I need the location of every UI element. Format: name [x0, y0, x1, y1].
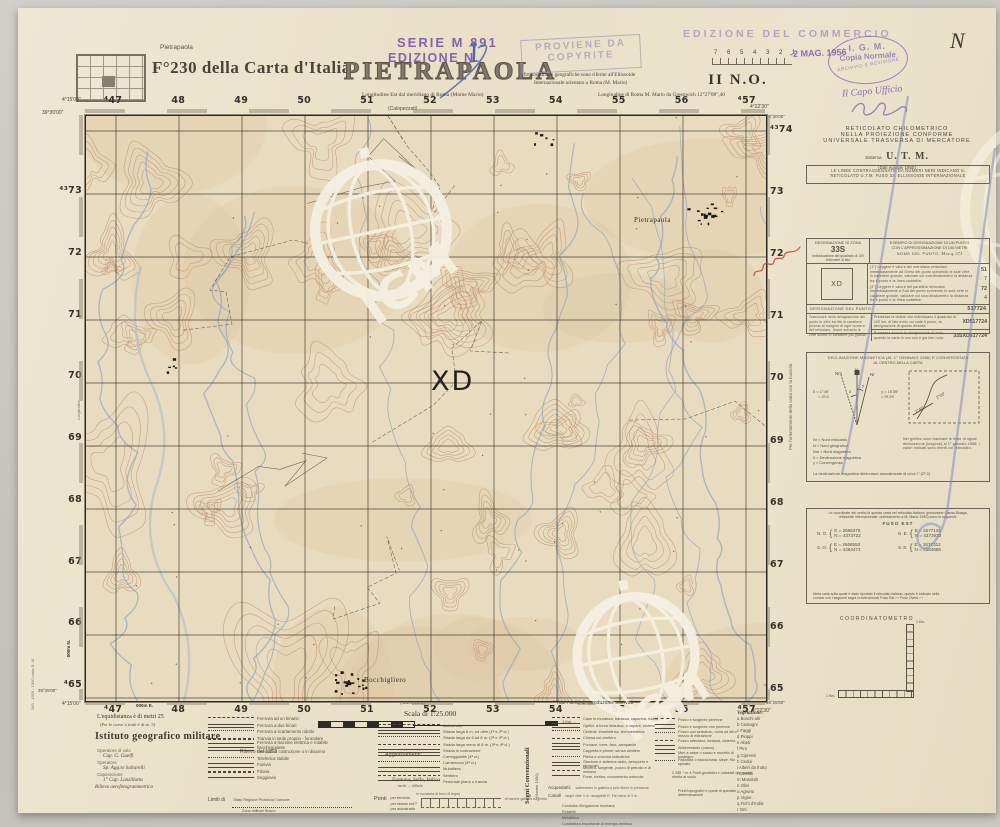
credit-name-2: Sp. Agg.to Saltarelli	[103, 765, 153, 771]
corner-northing: N = 4364686	[915, 547, 941, 552]
legend-row: Funivia	[208, 762, 338, 769]
legend-label: Carreggiabile (4ª cl.)	[443, 755, 479, 759]
grid-label: 69	[770, 435, 800, 446]
quadrant-label: II N.O.	[698, 72, 778, 89]
legend-label: Pedonale piano o traccia	[443, 780, 487, 784]
legend-label: Mulattiera	[443, 767, 461, 771]
isogone-chart: 2°00' 1°45'	[907, 369, 981, 425]
grid-labels-top: ⁴47484950515253545556⁴57	[104, 95, 756, 106]
black-grid-note: LE LINEE CONTRASSEGNATE DA NUMERI NERI I…	[806, 165, 990, 184]
legend-symbol	[552, 770, 580, 772]
black-note-2: RETICOLATO U.T.M. FUSO 33. ELLISSOIDE IN…	[807, 173, 989, 178]
corner-tl-lat: 39°30'00"	[42, 110, 63, 116]
legend-row: Pozzo artesiano, fontana, cisterna	[655, 737, 747, 744]
legend-symbol	[552, 717, 580, 721]
grid-label: 48	[171, 95, 185, 106]
corner-name: S. E.	[898, 545, 908, 550]
limits-divider	[232, 807, 352, 808]
legend-symbol	[655, 740, 675, 742]
brace: {	[829, 528, 832, 538]
legend-row: Teleferica stabile	[208, 756, 338, 763]
nome-punto-value: M.te q. 371	[941, 251, 962, 256]
grid-label: 52	[423, 95, 437, 106]
legend-symbol	[208, 777, 254, 781]
svg-text:N: N	[855, 368, 858, 373]
legend-symbol	[378, 761, 440, 765]
legend-railways: Ferrovia ad un binario Ferrovia a due bi…	[208, 716, 338, 782]
town-label-bocchigliero: Bocchigliero	[364, 676, 406, 684]
legend-symbol	[208, 738, 254, 740]
legend-symbol	[208, 717, 254, 721]
grid-label: 55	[612, 95, 626, 106]
legend-symbol	[655, 745, 675, 749]
corner-tl-lon: 4°15'00"	[62, 97, 81, 103]
credits-block: Operatore di volo Cap. G. Guelfi Operato…	[97, 748, 153, 790]
legend-symbol	[655, 724, 675, 728]
coords-note-2: cornice con i seguenti segni convenziona…	[813, 596, 983, 600]
legend-row: Pozzo con serbatoio, noria od altro mezz…	[655, 730, 747, 737]
legend-label: Seggiovia	[257, 776, 276, 781]
legend-label: Pozzo artesiano, fontana, cisterna	[678, 739, 735, 743]
legend-label: Cappella e pilone; senza cimitero	[583, 749, 640, 753]
corner-bl-lon: 4°15'00"	[62, 701, 81, 707]
corner-name: S. O.	[817, 545, 827, 550]
zona-value: 33S	[808, 245, 868, 254]
legend-row: Ferrovia a trazione elettrica e rotabile…	[208, 742, 338, 749]
print-code-vertical: 346 - 1956 - 1000 carta R. M.	[30, 590, 35, 710]
coordinate-note-2: Internazionale orientato a Roma (M. Mari…	[534, 80, 627, 86]
grid-label: 50	[297, 95, 311, 106]
coordinatometro-horizontal-ruler[interactable]	[838, 690, 914, 698]
legend-symbol	[208, 757, 254, 761]
legend-symbol	[552, 743, 580, 747]
proviene-stamp: PROVIENE DA COPYRITE	[520, 34, 642, 74]
declination-title-2: AL CENTRO DELLA CARTA	[807, 360, 989, 365]
corner-coordinate: S. E. { E = 2677312 N = 4364686	[898, 542, 979, 552]
legend-label: Ferrovia a due binari	[257, 724, 296, 729]
example-square-label: XD	[831, 281, 843, 288]
equidistance-note-2: (Per le curve a tratti è di m. 5)	[100, 722, 155, 727]
igm-institute-title: Istituto geografico militare	[95, 731, 220, 742]
legend-symbol	[378, 724, 440, 728]
utm-square-label: XD	[431, 366, 474, 397]
grid-label: ⁴47	[104, 95, 122, 106]
equidistance-note: L'equidistanza è di metri 25	[97, 714, 164, 720]
legend-wells: Pozzo e sorgente perenne Pozzo e sorgent…	[655, 716, 747, 765]
nome-punto-label: NOME DEL PUNTO:	[897, 251, 940, 256]
legend-symbol	[378, 736, 440, 740]
legend-symbol	[552, 749, 580, 753]
legend-label: Strada larga 8 m. ed oltre (1ª e 2ª cl.)	[443, 730, 509, 734]
legend-symbol	[378, 755, 440, 759]
svg-text:δ: δ	[849, 389, 852, 394]
svg-text:γ: γ	[862, 383, 864, 388]
limits-items-1: Stato Regione Provincia Comune	[233, 798, 289, 802]
brace: {	[910, 542, 913, 552]
margin-ruler	[712, 58, 792, 65]
legend-label: Ferrovia ad un binario	[257, 717, 299, 722]
legend-label: Fornace, torre, faro, campanile	[583, 743, 636, 747]
legend-symbol	[378, 744, 440, 746]
designation-step-1: (1°) Leggere il valore del meridiano ret…	[870, 265, 973, 283]
coords-intro-2: ellissoide internazionale, orientamento …	[811, 515, 985, 519]
legend-label: Strada larga meno di 6 m. (3ª e 4ª cl.)	[443, 743, 510, 747]
legend-symbol	[552, 723, 580, 727]
igm-watermark-r: ®	[686, 642, 705, 662]
vegetation-item: r Orti	[737, 807, 795, 813]
gamma-value-2: = 0ᵍ,29	[881, 394, 899, 399]
brace: {	[829, 542, 832, 552]
legend-label: Autostrada	[443, 724, 462, 728]
legend-label: Teleferica stabile	[257, 757, 289, 762]
designation-step-2: (2°) Leggere il valore del parallelo ret…	[870, 285, 973, 303]
legend-symbol	[552, 730, 580, 734]
legend-row: Ferrovia a due binari	[208, 723, 338, 730]
handwritten-n: N	[950, 28, 965, 54]
locator-highlight-cell	[102, 76, 115, 87]
lettering-example-sub: facile — difficile	[398, 784, 423, 788]
grid-label: 49	[234, 95, 248, 106]
sistema-value: U. T. M.	[886, 151, 929, 162]
legend-label: Opifici: a forza idraulica, a vapore, el…	[583, 724, 655, 728]
canals-row-3: Rotabile	[562, 810, 684, 814]
designation-value-2: XD517724	[962, 319, 987, 325]
canals-row-5: Conduttura importante di energia elettri…	[562, 822, 684, 826]
example-square: XD	[821, 268, 853, 300]
legend-label: Funivia	[257, 763, 271, 768]
legend-symbol	[655, 732, 675, 736]
corner-coordinate: N. O. { E = 2666375 N = 4373722	[817, 528, 898, 538]
legend-row: Seggiovia	[208, 775, 338, 782]
utm-heading: RETICOLATO CHILOMETRICO NELLA PROIEZIONE…	[806, 126, 988, 170]
grid-label: 51	[360, 95, 374, 106]
legend-label: Ferrovia in costruzione o in disarmo	[257, 750, 325, 755]
legend-label: Pozzo e sorgente perenne	[678, 718, 723, 722]
corner-northing: N = 4373722	[834, 533, 860, 538]
corner-name: N. O.	[817, 531, 827, 536]
corner-northing: N = 4373933	[915, 533, 941, 538]
brace: {	[910, 528, 913, 538]
legend-label: Filovia	[257, 770, 269, 775]
legend-label: Ferrovia a scartamento ridotto	[257, 730, 314, 735]
zona-sub: Individuazione del quadrato di 100 chilo…	[808, 254, 868, 262]
grid-label: 50	[297, 704, 311, 715]
locator-label: Pietrapaola	[160, 44, 193, 51]
step2-value-a: 72	[975, 286, 987, 292]
igm-watermark-top: IGM ®	[256, 116, 506, 356]
corner-coordinate: N. E. { E = 2677125 N = 4373933	[898, 528, 979, 538]
legend-row: Filovia	[208, 769, 338, 776]
point-designation-panel: DESIGNAZIONE DI ZONA 33S Individuazione …	[806, 238, 990, 334]
bridge-rows: per ferroviaper strada ord.ªper autostra…	[391, 796, 417, 813]
svg-text:Nr: Nr	[870, 372, 875, 377]
legend-label: Centrali: idroelettrica, termoelettrica	[583, 730, 644, 734]
legend-label: Case in muratura, baracca, capanna, rude…	[583, 717, 658, 721]
grid-label: 70	[770, 372, 800, 383]
canals-row-1: larghi oltre 3 m. navigabile R. Fle meno…	[565, 794, 637, 798]
designation-note-3: Premessa ancora la designazione di zona,…	[874, 331, 951, 340]
fuso-mark-top	[85, 109, 765, 113]
legend-label: Strada in costruzione	[443, 749, 481, 753]
legend-label: Strada larga da 6 ad 8 m. (2ª e 3ª cl.)	[443, 736, 509, 740]
canals-row-2: Condotta d'irrigazione montana	[562, 804, 684, 808]
corner-br-lat: 39°25'00"	[766, 700, 785, 705]
corner-coordinates-grid: N. O. { E = 2666375 N = 4373722 N. E. { …	[807, 526, 989, 554]
vegetation-list: a Boschi altib Castagnic Faggid Pioppie …	[737, 716, 795, 814]
legend-symbol	[552, 738, 580, 740]
grid-label: 71	[770, 310, 800, 321]
sidebar-vertical-note: Per l'orientamento della carta con la bu…	[788, 190, 793, 450]
legend-symbol	[378, 730, 440, 734]
legend-label: Pozzo e sorgente non perenne	[678, 725, 730, 729]
designation-note-2: Premesse le lettere che individuano il q…	[874, 315, 960, 328]
coordinatometro-km-label: 1 Km.	[916, 620, 925, 624]
scale-title: Scala di 1:25.000	[404, 709, 456, 718]
designation-note-1: Trascurare nella designazione del punto …	[809, 315, 869, 337]
town-label-pietrapaola: Pietrapaola	[634, 216, 671, 224]
grid-label: 68	[770, 497, 800, 508]
legend-symbol	[378, 767, 440, 771]
bridge-row-label: per autostrada	[391, 807, 417, 813]
bridges-block: in muratura di ferro di legno Ponti per …	[374, 792, 560, 813]
sheet-title: F°230 della Carta d'Italia	[152, 58, 351, 78]
scanned-map-sheet: Pietrapaola F°230 della Carta d'Italia P…	[0, 0, 1000, 827]
legend-roads: Autostrada Strada larga 8 m. ed oltre (1…	[378, 723, 546, 785]
survey-method: Rilievo aerofotogrammetrico	[95, 785, 153, 790]
isogone-note: Nel grafico sono tracciate le linee di u…	[903, 437, 983, 451]
legend-symbol	[552, 756, 580, 760]
bridge-extra: di barche galleria traghetto	[505, 797, 548, 801]
vegetation-block: Vegetazione: a Boschi altib Castagnic Fa…	[737, 711, 795, 814]
designation-label: DESIGNAZIONE DEL PUNTO:	[810, 306, 873, 312]
grid-label: 56	[675, 95, 689, 106]
annual-variation-note: La declinazione magnetica diminuisce ann…	[813, 471, 930, 476]
margin-ruler-numbers: 7 6 5 4 3 2 1	[714, 50, 799, 56]
coordinate-note-1: Le coordinate geografiche sono riferite …	[524, 72, 635, 78]
igm-watermark-text: IGM	[351, 232, 468, 337]
grid-label: 65	[770, 683, 800, 694]
legend-symbol	[208, 730, 254, 734]
legend-symbol	[208, 771, 254, 773]
grid-label: 48	[171, 704, 185, 715]
grid-label: 49	[234, 704, 248, 715]
coordinatometro-vertical-ruler[interactable]	[906, 624, 914, 692]
svg-text:2°00': 2°00'	[935, 391, 946, 400]
legend-symbol	[655, 760, 675, 764]
legend-label: Sentiero	[443, 774, 458, 778]
corner-coordinates-panel: Le coordinate dei vertici di questa cart…	[806, 508, 990, 604]
legend-symbol	[655, 753, 675, 757]
example-header-2: CON L'APPROSSIMAZIONE DI 100 METRI	[872, 245, 987, 250]
limits-items-2: Zona militare Bosco	[242, 809, 358, 813]
declination-panel: DECLINAZIONE MAGNETICA (AL 1° GENNAIO 19…	[806, 352, 990, 482]
legend-symbol	[208, 724, 254, 728]
credit-name-1: Cap. G. Guelfi	[103, 753, 153, 759]
limits-label: Limiti di	[208, 797, 225, 803]
grid-label: 67	[770, 559, 800, 570]
grid-label: 66	[770, 621, 800, 632]
grid-label: 53	[486, 704, 500, 715]
legend-row: Pozzo e sorgente perenne	[655, 716, 747, 723]
decl-legend-5: γ = Convergenza	[813, 460, 861, 466]
corner-coordinate: S. O. { E = 2666550 N = 4364473	[817, 542, 898, 552]
legend-row: Ferrovia in costruzione o in disarmo	[208, 749, 338, 756]
canals-row-4: Mulattiera	[562, 816, 684, 820]
corner-northing: N = 4364473	[834, 547, 860, 552]
legend-symbol	[208, 750, 254, 754]
svg-text:Nm: Nm	[835, 371, 842, 376]
designation-value-3: 33SXD517724	[953, 333, 987, 339]
grid-label: ⁴³74	[770, 124, 800, 135]
coordinatometro-title: COORDINATOMETRO	[840, 616, 914, 622]
step2-value-b: 4	[975, 295, 987, 301]
legend-row: Palizzata o staccionata, siepe, filo spi…	[655, 758, 747, 765]
bridges-label: Ponti	[374, 796, 387, 802]
legend-label: Abbeveratoio (vasca)	[678, 746, 714, 750]
grid-label: 54	[549, 95, 563, 106]
legend-symbol	[208, 763, 254, 767]
svg-text:1°45': 1°45'	[914, 405, 925, 414]
lettering-example: Fontana, Sella, Valico	[392, 777, 440, 783]
canals-block: Canali larghi oltre 3 m. navigabile R. F…	[548, 784, 684, 826]
rights-note: Tutti i diritti di riproduzione riservat…	[556, 700, 633, 706]
grid-label: 53	[486, 95, 500, 106]
legend-buildings: Case in muratura, baracca, capanna, rude…	[552, 716, 662, 780]
grid-label: 51	[360, 704, 374, 715]
legend-row: Ferrovia a scartamento ridotto	[208, 729, 338, 736]
topographic-map: XD Pietrapaola Bocchigliero IGM ®	[85, 115, 767, 702]
step1-value-a: 51	[975, 267, 987, 273]
coordinatometro-km-label-2: 1 Km.	[826, 694, 835, 698]
legend-symbol	[655, 718, 675, 722]
signature-squiggle	[848, 96, 912, 122]
longitude-vertical-label: Longitudine	[77, 360, 81, 420]
corner-name: N. E.	[898, 531, 908, 536]
credit-name-3: 1° Cap. Lanzillotta	[103, 777, 153, 783]
legend-label: Chiesa col cimitero	[583, 736, 616, 740]
legend-symbol	[378, 749, 440, 753]
legend-symbol	[552, 762, 580, 766]
legend-row: Ferrovia ad un binario	[208, 716, 338, 723]
grid-labels-left: ⁴³7372717069686766⁴65	[52, 185, 82, 690]
designation-value: 517724	[967, 306, 986, 312]
bridge-symbols	[421, 798, 501, 808]
legend-symbol	[208, 743, 254, 747]
utm-line3: UNIVERSALE TRASVERSA DI MERCATORE	[806, 138, 988, 144]
step1-value-b: 7	[975, 276, 987, 282]
northing-suffix: 000m N.	[66, 640, 71, 657]
legend-label: Carrareccia (5ª cl.)	[443, 761, 476, 765]
grid-labels-right: ⁴³74737271706968676665	[770, 124, 800, 694]
limits-block: Limiti di Stato Regione Provincia Comune…	[208, 788, 358, 813]
delta-value-2: = 2ᵍ,0	[813, 394, 829, 399]
grid-label: 73	[770, 186, 800, 197]
sistema-label: Sistema	[865, 155, 882, 160]
canals-label: Canali	[548, 793, 561, 798]
